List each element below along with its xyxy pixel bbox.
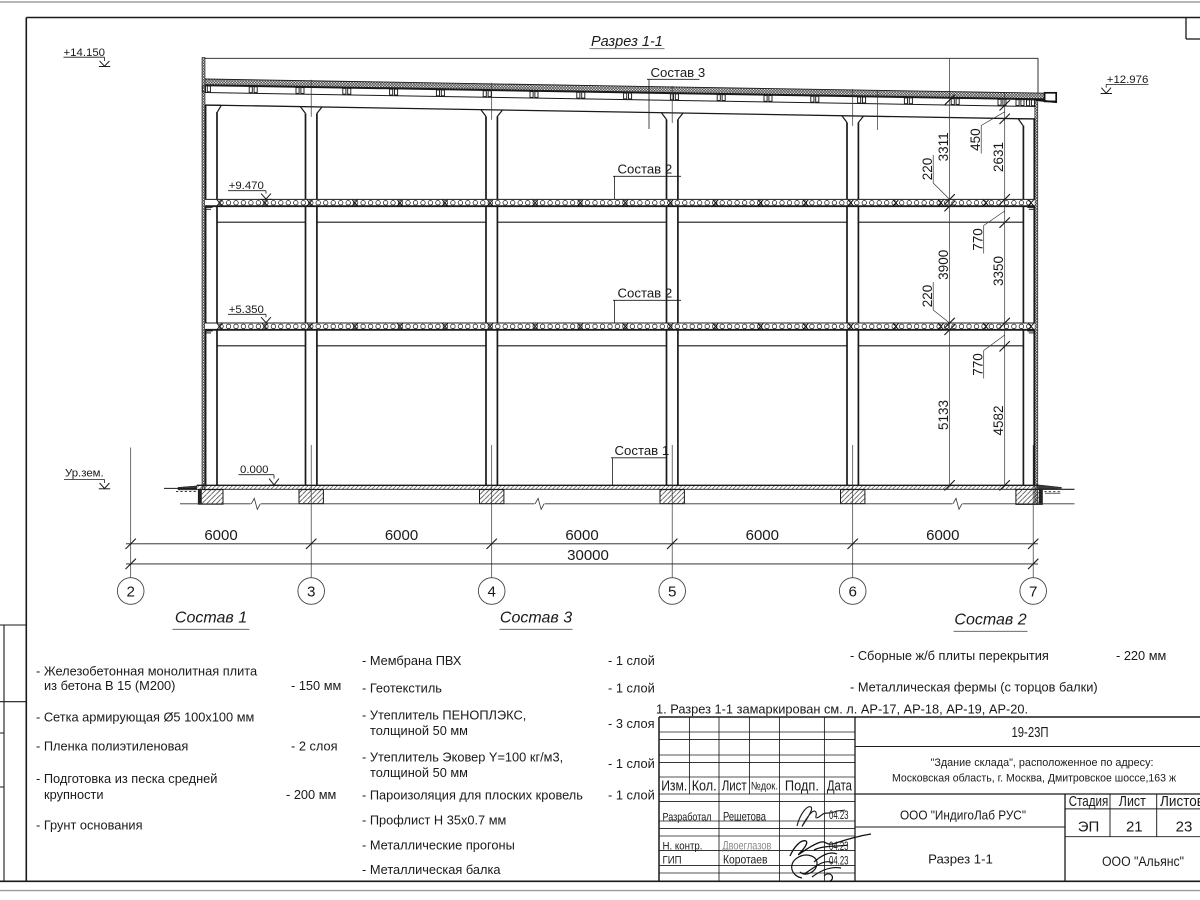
svg-text:04.23: 04.23 [829,841,849,853]
svg-text:- 1 слой: - 1 слой [608,788,655,803]
svg-text:- Пароизоляция для плоских кро: - Пароизоляция для плоских кровель [362,788,583,803]
svg-text:- Подготовка из песка средней: - Подготовка из песка средней [36,771,217,786]
svg-text:Дата: Дата [827,778,852,795]
svg-text:220: 220 [920,158,935,181]
svg-text:5: 5 [668,583,676,600]
svg-text:21: 21 [1126,819,1143,836]
svg-text:Двоеглазов: Двоеглазов [722,839,771,853]
svg-text:6: 6 [848,583,856,600]
svg-text:6000: 6000 [385,527,418,544]
svg-text:220: 220 [920,285,935,308]
svg-text:6000: 6000 [926,527,959,544]
svg-text:5133: 5133 [936,400,951,430]
svg-text:450: 450 [968,128,983,151]
svg-text:2: 2 [126,583,134,600]
svg-text:Коротаев: Коротаев [723,853,768,867]
svg-text:- Железобетонная монолитная п: - Железобетонная монолитная плита [36,664,258,679]
svg-text:770: 770 [971,228,986,251]
svg-text:Состав 1: Состав 1 [175,610,247,627]
svg-text:19-23П: 19-23П [1012,725,1049,741]
svg-text:3: 3 [307,583,315,600]
svg-text:ЭП: ЭП [1078,819,1100,836]
svg-text:крупности: крупности [44,787,104,802]
svg-text:толщиной 50 мм: толщиной 50 мм [370,723,468,738]
svg-text:- Утеплитель ПЕНОПЛЭКС,: - Утеплитель ПЕНОПЛЭКС, [362,708,526,723]
svg-text:"Здание склада", расположенное: "Здание склада", расположенное по адресу… [931,757,1154,769]
svg-text:Н. контр.: Н. контр. [663,841,703,853]
svg-text:ООО "Альянс": ООО "Альянс" [1102,854,1184,870]
svg-text:Разрез 1-1: Разрез 1-1 [928,852,993,867]
svg-text:Изм.: Изм. [661,778,687,795]
svg-text:толщиной 50 мм: толщиной 50 мм [370,765,468,780]
svg-text:Состав 1: Состав 1 [615,443,670,458]
svg-text:04.23: 04.23 [829,810,849,822]
svg-text:Состав 3: Состав 3 [500,610,572,627]
svg-text:- Сетка армирующая Ø5 100х100: - Сетка армирующая Ø5 100х100 мм [36,710,254,725]
svg-text:Разрез 1-1: Разрез 1-1 [591,34,663,50]
svg-text:Листов: Листов [1160,793,1200,810]
svg-text:Разработал: Разработал [663,812,712,824]
svg-text:7: 7 [1029,583,1037,600]
svg-text:2631: 2631 [991,142,1006,172]
svg-text:Стадия: Стадия [1069,793,1109,810]
svg-text:- Мембрана ПВХ: - Мембрана ПВХ [362,653,462,668]
svg-text:- Геотекстиль: - Геотекстиль [362,681,442,696]
svg-text:04.23: 04.23 [829,856,849,868]
svg-text:Ур.зем.: Ур.зем. [65,468,104,480]
svg-text:- Металлическая фермы (с торцо: - Металлическая фермы (с торцов балки) [850,680,1098,695]
svg-text:1. Разрез 1-1 замаркирован см.: 1. Разрез 1-1 замаркирован см. л. АР-17,… [656,702,1028,717]
svg-text:ООО "ИндигоЛаб РУС": ООО "ИндигоЛаб РУС" [900,808,1026,823]
svg-text:из бетона В 15 (М200): из бетона В 15 (М200) [44,678,175,693]
svg-text:3311: 3311 [936,132,951,161]
svg-text:6000: 6000 [746,527,779,544]
svg-text:Кол.: Кол. [692,778,717,795]
svg-text:3900: 3900 [936,250,951,280]
svg-text:4582: 4582 [991,405,1006,435]
svg-text:4: 4 [487,583,495,600]
svg-text:- 2 слоя: - 2 слоя [291,739,338,754]
svg-text:- Сборные ж/б плиты перекрытия: - Сборные ж/б плиты перекрытия [850,648,1049,663]
svg-text:- Металлическая балка: - Металлическая балка [362,862,501,877]
svg-text:6000: 6000 [565,527,598,544]
svg-text:Состав 2: Состав 2 [618,162,673,177]
svg-text:Лист: Лист [722,778,747,795]
svg-text:ГИП: ГИП [663,855,682,867]
svg-text:Лист: Лист [1119,793,1146,810]
svg-text:Решетова: Решетова [723,810,766,824]
svg-text:6000: 6000 [204,527,237,544]
svg-text:- 150 мм: - 150 мм [291,678,341,693]
svg-text:23: 23 [1176,819,1193,836]
svg-text:- 1 слой: - 1 слой [608,756,655,771]
svg-text:Подп.: Подп. [785,778,819,795]
svg-text:- 220 мм: - 220 мм [1116,648,1166,663]
svg-text:- 1 слой: - 1 слой [608,653,655,668]
svg-text:Состав 2: Состав 2 [954,612,1026,629]
svg-text:- Пленка полиэтиленовая: - Пленка полиэтиленовая [36,739,188,754]
svg-text:- 1 слой: - 1 слой [608,681,655,696]
svg-text:770: 770 [971,353,986,376]
svg-text:- Металлические прогоны: - Металлические прогоны [362,838,515,853]
svg-text:30000: 30000 [567,547,609,564]
svg-text:- Профлист Н 35х0.7 мм: - Профлист Н 35х0.7 мм [362,813,506,828]
svg-text:3350: 3350 [991,256,1006,286]
svg-text:- Грунт основания: - Грунт основания [36,818,143,833]
svg-text:Состав 3: Состав 3 [651,65,706,80]
svg-text:- Утеплитель Эковер Y=100 кг/м: - Утеплитель Эковер Y=100 кг/м3, [362,750,563,765]
svg-text:Состав 2: Состав 2 [618,286,673,301]
svg-text:№док.: №док. [751,781,778,793]
svg-text:- 200 мм: - 200 мм [286,787,336,802]
svg-text:Московская область, г. Москва,: Московская область, г. Москва, Дмитровск… [892,773,1177,785]
svg-text:- 3 слоя: - 3 слоя [608,716,655,731]
